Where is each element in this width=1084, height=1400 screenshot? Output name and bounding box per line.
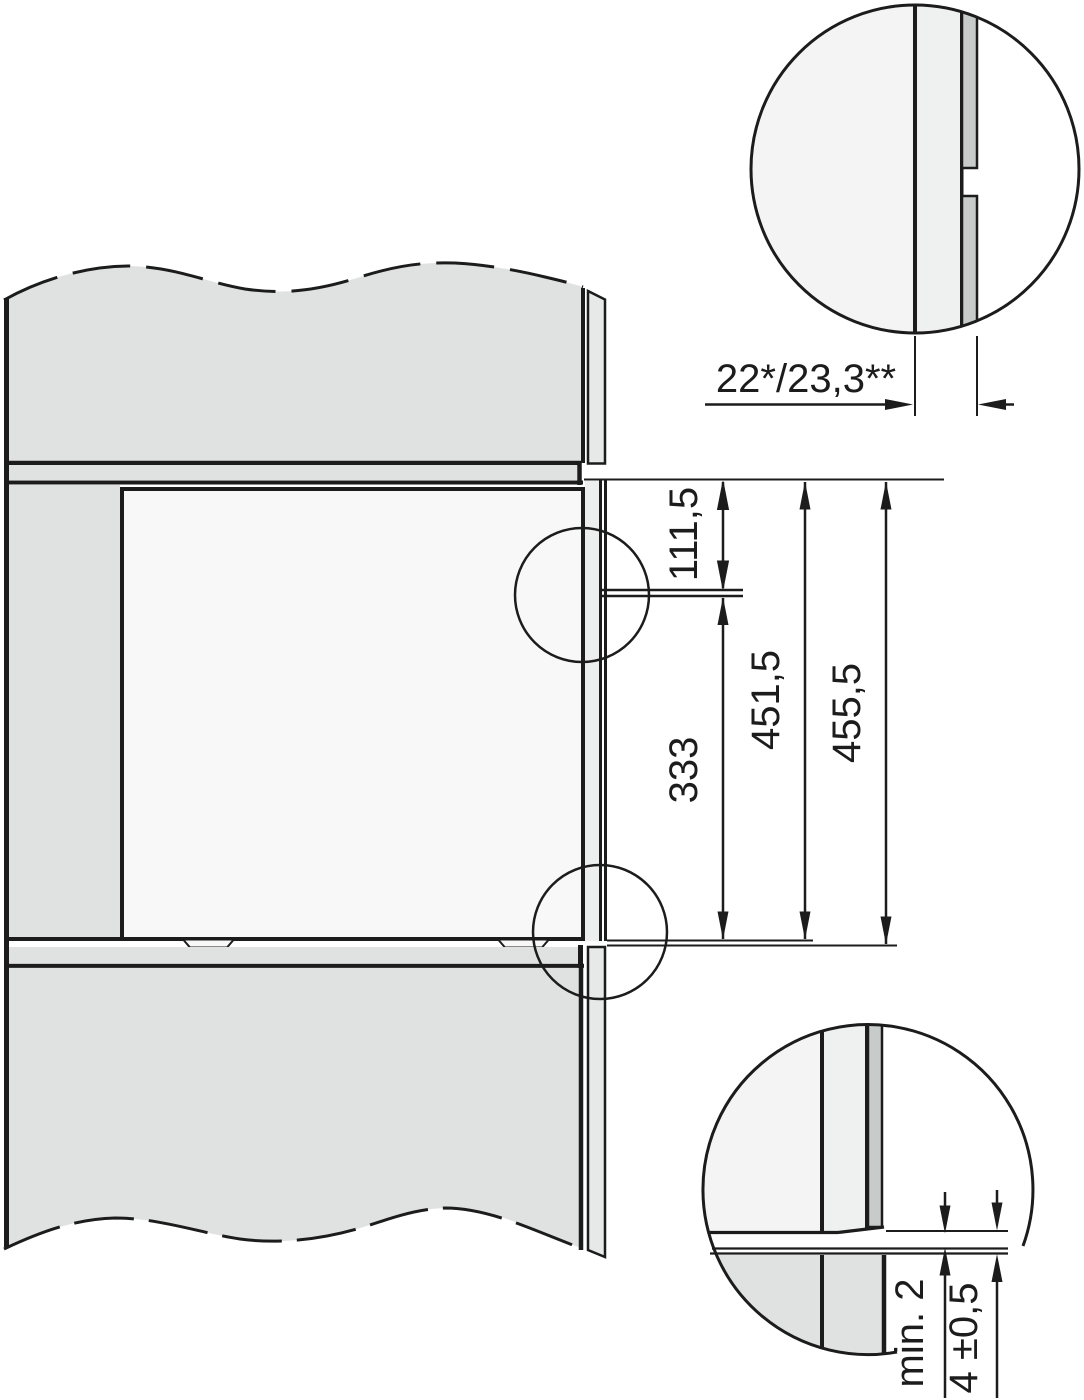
dim-label-seam-to-bottom: 333 (662, 737, 706, 804)
detail-bottom-trim (868, 1022, 882, 1227)
upper-front-panel-sliver (588, 291, 605, 464)
detail-top-front-edge-line (913, 3, 917, 336)
detail-bottom-panel-area (824, 1020, 865, 1231)
detail-bottom-inner-line (820, 1020, 824, 1234)
lower-front-panel-sliver (588, 947, 605, 1257)
dim-label-min-clearance: min. 2 (888, 1279, 932, 1388)
dim-label-panel-thickness: 22*/23,3** (716, 357, 896, 401)
upper-cabinet-fill (4, 263, 583, 463)
dim-label-bottom-gap: 4 ±0,5 (942, 1283, 986, 1394)
oven-side-strip (585, 481, 599, 941)
page: 111,5 333 451,5 455,5 (0, 0, 1084, 1400)
lower-shelf-fill (9, 947, 578, 963)
lower-cabinet-fill (9, 968, 581, 1248)
niche-floor-notch-right (499, 941, 548, 948)
detail-top-trim-joint-line (961, 168, 964, 196)
installation-drawing: 111,5 333 451,5 455,5 (0, 0, 1084, 1400)
side-wall-fill (9, 485, 120, 937)
dim-label-overall-height: 455,5 (825, 663, 869, 763)
dim-label-top-to-seam: 111,5 (662, 487, 706, 581)
detail-top-trim-upper (962, 4, 977, 168)
niche-floor-notch-left (184, 941, 233, 948)
detail-top-trim-lower (962, 196, 977, 332)
niche-interior (124, 491, 581, 937)
detail-top-panel-area (917, 3, 961, 336)
dim-label-niche-height: 451,5 (744, 650, 788, 750)
upper-shelf-fill (9, 465, 577, 480)
